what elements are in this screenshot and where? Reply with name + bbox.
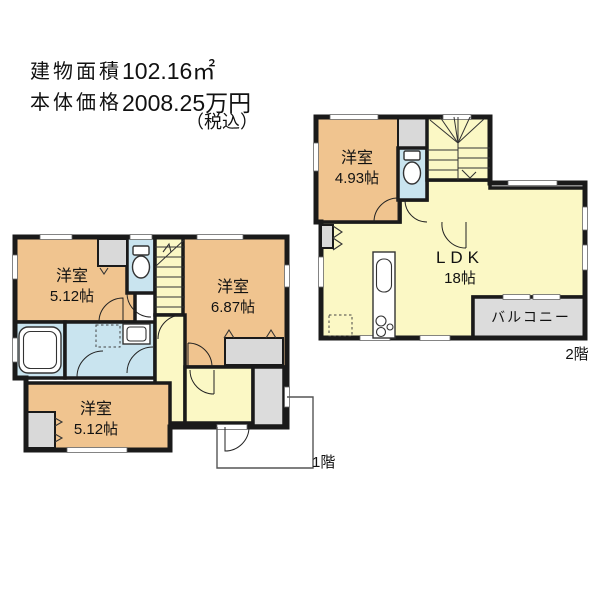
floor2-label: 2階: [565, 346, 588, 363]
toilet-icon: [404, 151, 421, 184]
toilet-icon: [133, 246, 150, 278]
floor2-closet: [398, 117, 427, 148]
window-marker: [330, 115, 378, 120]
price-label: 本体価格: [30, 86, 122, 115]
building-area-value: 102.16㎡: [122, 52, 215, 86]
room-name: 洋室: [56, 267, 88, 285]
window-marker: [583, 207, 588, 230]
room-name: LDK: [436, 248, 484, 267]
sink-icon: [123, 324, 150, 344]
window-marker: [314, 143, 319, 171]
window-marker: [13, 338, 18, 362]
window-marker: [420, 336, 450, 341]
floor1-closet-nw: [98, 239, 127, 266]
balcony-door-marker: [533, 295, 560, 300]
floorplan-page: 建物面積 102.16㎡ 本体価格 2008.25万円 （税込）: [0, 0, 600, 600]
bathtub-icon: [19, 327, 61, 373]
room-name: 洋室: [217, 278, 249, 296]
window-marker: [130, 235, 152, 240]
window-marker: [319, 257, 324, 287]
floor1-hall-horizontal: [185, 367, 253, 423]
window-marker: [40, 235, 72, 240]
floor2-plan: 洋室 4.93帖 LDK 18帖 バルコニー 2階: [308, 106, 600, 370]
room-size: 6.87帖: [211, 299, 255, 316]
floor1-label: 1階: [312, 454, 335, 471]
room-name: 洋室: [80, 400, 112, 418]
floor1-plan: 洋室 5.12帖 洋室 6.87帖 洋室 5.12帖 1階: [0, 228, 348, 483]
building-area-label: 建物面積: [30, 55, 122, 84]
balcony-label: バルコニー: [491, 309, 571, 325]
floor1-closet-e: [225, 338, 283, 365]
window-marker: [285, 265, 290, 287]
balcony-door-marker: [503, 295, 530, 300]
window-marker: [583, 245, 588, 270]
window-marker: [197, 235, 243, 240]
window-marker: [443, 115, 471, 120]
front-door-opening: [217, 425, 247, 430]
room-size: 5.12帖: [74, 421, 118, 438]
floor1-closet-s: [26, 412, 55, 448]
window-marker: [13, 255, 18, 279]
room-size: 18帖: [444, 270, 476, 287]
price-tax-note: （税込）: [186, 108, 258, 134]
room-size: 5.12帖: [50, 288, 94, 305]
room-name: 洋室: [341, 149, 373, 167]
kitchen-counter-icon: [373, 252, 395, 338]
room-size: 4.93帖: [335, 170, 379, 187]
window-marker: [67, 448, 127, 453]
window-marker: [508, 181, 557, 186]
floor1-entrance: [253, 367, 284, 426]
